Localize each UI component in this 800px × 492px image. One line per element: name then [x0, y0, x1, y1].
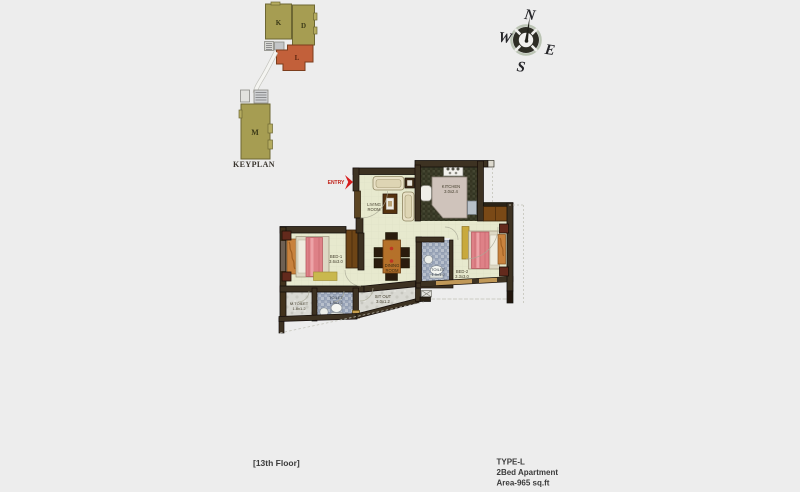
svg-text:3.6x3.0: 3.6x3.0	[329, 259, 343, 264]
svg-text:1.5x1.2: 1.5x1.2	[329, 300, 343, 305]
svg-text:3.0x2.4: 3.0x2.4	[444, 189, 458, 194]
svg-text:E: E	[543, 42, 556, 59]
svg-text:ENTRY: ENTRY	[328, 180, 345, 186]
svg-text:ROOM: ROOM	[385, 268, 399, 273]
svg-text:KEYPLAN: KEYPLAN	[233, 160, 275, 169]
svg-text:1.5x1.2: 1.5x1.2	[431, 272, 445, 277]
svg-text:2Bed Apartment: 2Bed Apartment	[497, 468, 559, 477]
svg-text:L: L	[295, 54, 300, 62]
svg-text:1.8x1.2: 1.8x1.2	[292, 306, 306, 311]
svg-text:3.3x3.0: 3.3x3.0	[455, 274, 469, 279]
svg-text:K: K	[276, 19, 282, 27]
svg-text:Area-965 sq.ft: Area-965 sq.ft	[497, 479, 550, 488]
svg-text:3.0x1.2: 3.0x1.2	[376, 299, 390, 304]
svg-text:M: M	[251, 128, 259, 137]
svg-text:D: D	[301, 22, 306, 30]
svg-text:ROOM: ROOM	[367, 207, 381, 212]
svg-text:TYPE-L: TYPE-L	[497, 458, 526, 467]
svg-text:[13th Floor]: [13th Floor]	[253, 458, 300, 468]
